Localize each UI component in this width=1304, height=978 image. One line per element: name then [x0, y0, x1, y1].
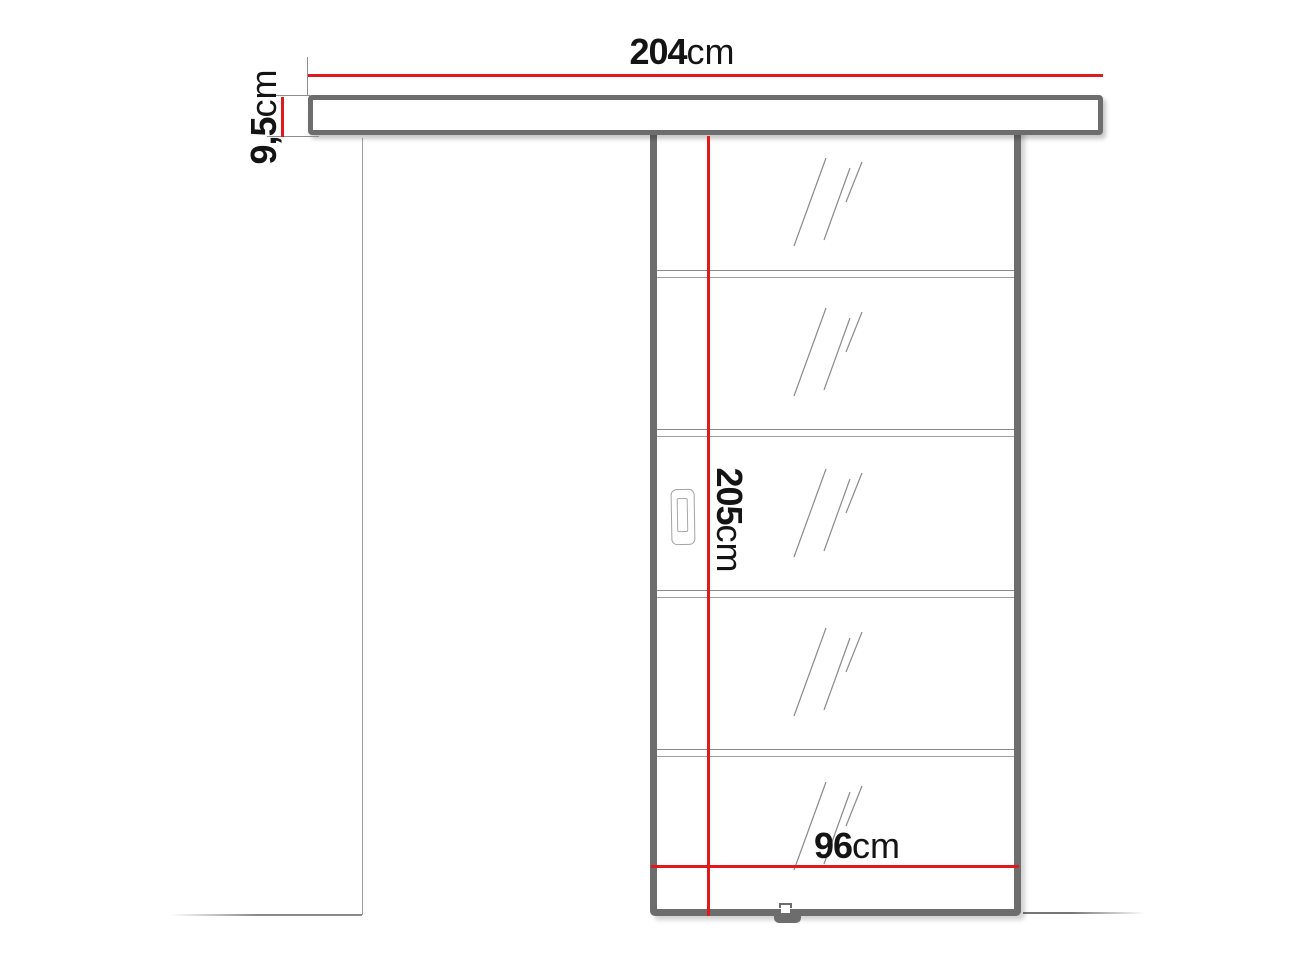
door-width-label: 96cm — [742, 827, 972, 865]
diagram-canvas: 204cm 9,5cm 205cm 96cm — [0, 0, 1304, 978]
rail-width-value: 204 — [629, 31, 686, 72]
glass-divider — [657, 749, 1014, 757]
rail-height-value: 9,5 — [243, 117, 284, 164]
glass-divider — [657, 270, 1014, 278]
glass-reflection-icon — [782, 302, 882, 402]
door-width-value: 96 — [814, 825, 852, 866]
glass-reflection-icon — [782, 152, 882, 252]
door-handle — [671, 489, 696, 545]
door-handle-recess — [677, 498, 689, 532]
dim-line-rail-width — [308, 74, 1103, 77]
floor-line-right — [1023, 912, 1145, 914]
rail-width-label: 204cm — [567, 33, 797, 71]
glass-reflection-icon — [782, 463, 882, 563]
door-height-value: 205 — [709, 467, 750, 524]
top-rail — [308, 95, 1103, 135]
door-panel — [650, 112, 1021, 916]
door-height-unit: cm — [709, 525, 750, 573]
rail-height-label: 9,5cm — [245, 42, 283, 192]
glass-divider — [657, 429, 1014, 437]
rail-width-unit: cm — [687, 31, 735, 72]
wall-line-left — [362, 138, 363, 915]
floor-line-left — [170, 914, 362, 916]
door-height-label: 205cm — [710, 445, 748, 595]
rail-height-unit: cm — [243, 69, 284, 117]
glass-reflection-icon — [782, 622, 882, 722]
floor-guide-hole — [781, 905, 790, 913]
door-width-unit: cm — [852, 825, 900, 866]
